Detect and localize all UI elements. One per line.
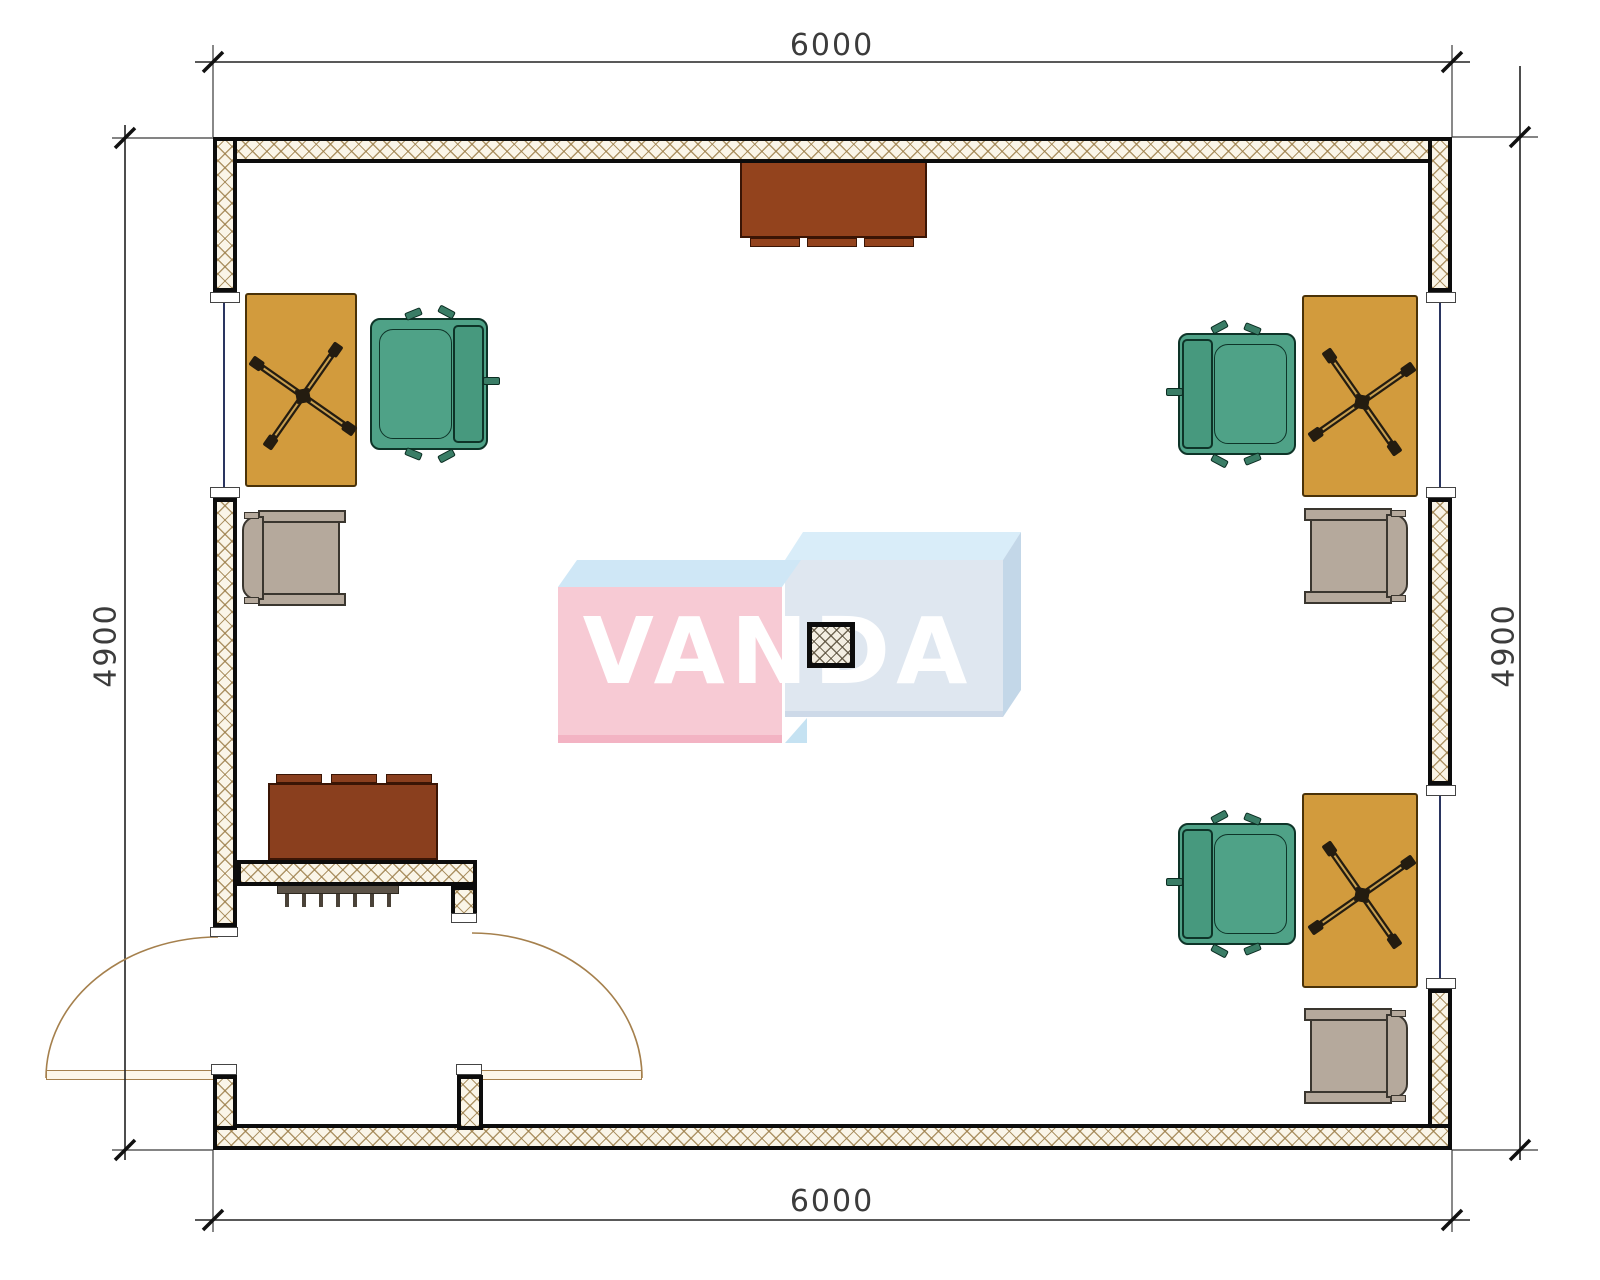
armchair-gray-1 xyxy=(1300,500,1412,612)
cabinet-top-wall-foot-0 xyxy=(750,238,800,247)
chair-seat xyxy=(1214,834,1287,934)
armchair-body xyxy=(1310,519,1398,593)
radiator-tick xyxy=(370,894,374,907)
desk-0 xyxy=(245,293,357,487)
cabinet-vestibule xyxy=(268,783,438,860)
cabinet-top-wall xyxy=(740,160,927,238)
wall-end-cap-7 xyxy=(451,913,477,923)
wall-end-cap-0 xyxy=(210,292,240,303)
dimension-label-right: 4900 xyxy=(1487,586,1522,706)
wall-left-upper xyxy=(213,137,237,292)
armchair-body xyxy=(1310,1019,1398,1093)
armchair-gray-2 xyxy=(1300,1000,1412,1112)
armchair-foot xyxy=(1391,595,1406,602)
chair-backrest xyxy=(453,325,484,444)
chair-armrest-nub xyxy=(483,377,500,385)
armchair-body xyxy=(252,521,340,595)
chair-backrest xyxy=(1182,829,1213,939)
wall-end-cap-3 xyxy=(1426,487,1456,498)
wall-door-stub-left xyxy=(213,1075,237,1130)
radiator-tick xyxy=(319,894,323,907)
armchair-foot xyxy=(1391,1095,1406,1102)
armchair-foot xyxy=(244,597,259,604)
chair-backrest xyxy=(1182,339,1213,449)
wall-bottom xyxy=(213,1124,1452,1150)
watermark-box-right-strip xyxy=(785,711,1003,717)
radiator-tick xyxy=(353,894,357,907)
structural-column xyxy=(807,622,855,668)
radiator-tick xyxy=(285,894,289,907)
watermark-box-left-strip xyxy=(558,735,782,743)
radiator-tick xyxy=(336,894,340,907)
wall-right-mid xyxy=(1428,498,1452,785)
wall-left-mid xyxy=(213,498,237,927)
cabinet-vestibule-foot-2 xyxy=(386,774,432,783)
wall-end-cap-1 xyxy=(210,487,240,498)
watermark-box-right-side xyxy=(1003,532,1021,717)
chair-seat xyxy=(1214,344,1287,444)
wall-end-cap-4 xyxy=(1426,785,1456,796)
armchair-backrest xyxy=(1386,1014,1408,1098)
armchair-gray-0 xyxy=(238,502,350,614)
dimension-label-top: 6000 xyxy=(772,28,892,63)
dimension-label-left: 4900 xyxy=(89,586,124,706)
cabinet-vestibule-foot-0 xyxy=(276,774,322,783)
desk-2 xyxy=(1302,793,1418,988)
watermark-box-left-top xyxy=(558,560,801,587)
cabinet-top-wall-foot-1 xyxy=(807,238,857,247)
office-chair-green-1 xyxy=(1178,333,1296,455)
chair-seat xyxy=(379,329,452,439)
radiator-tick xyxy=(387,894,391,907)
wall-top xyxy=(213,137,1452,163)
armchair-backrest xyxy=(1386,514,1408,598)
office-chair-green-2 xyxy=(1178,823,1296,945)
armchair-foot xyxy=(1391,1010,1406,1017)
watermark-box-right-top xyxy=(785,532,1021,560)
wall-right-upper xyxy=(1428,137,1452,292)
radiator-tick xyxy=(302,894,306,907)
wall-end-cap-9 xyxy=(456,1064,482,1075)
cabinet-vestibule-foot-1 xyxy=(331,774,377,783)
wall-partition xyxy=(237,860,477,886)
floor-plan-canvas: VANDA 6000 6000 4900 4900 xyxy=(0,0,1600,1280)
wall-door-stub-right xyxy=(457,1075,483,1130)
armchair-foot xyxy=(1391,510,1406,517)
wall-end-cap-8 xyxy=(211,1064,237,1075)
dimension-label-bottom: 6000 xyxy=(772,1184,892,1219)
door-leaf-1 xyxy=(460,1070,642,1080)
chair-armrest-nub xyxy=(1166,388,1183,396)
watermark-text: VANDA xyxy=(552,606,1004,698)
cabinet-top-wall-foot-2 xyxy=(864,238,914,247)
wall-end-cap-2 xyxy=(1426,292,1456,303)
armchair-backrest xyxy=(242,516,264,600)
wall-end-cap-5 xyxy=(1426,978,1456,989)
watermark-box-right-flap xyxy=(785,718,807,743)
desk-1 xyxy=(1302,295,1418,497)
office-chair-green-0 xyxy=(370,318,488,450)
armchair-foot xyxy=(244,512,259,519)
wall-end-cap-6 xyxy=(210,927,238,937)
chair-armrest-nub xyxy=(1166,878,1183,886)
door-leaf-0 xyxy=(46,1070,230,1080)
